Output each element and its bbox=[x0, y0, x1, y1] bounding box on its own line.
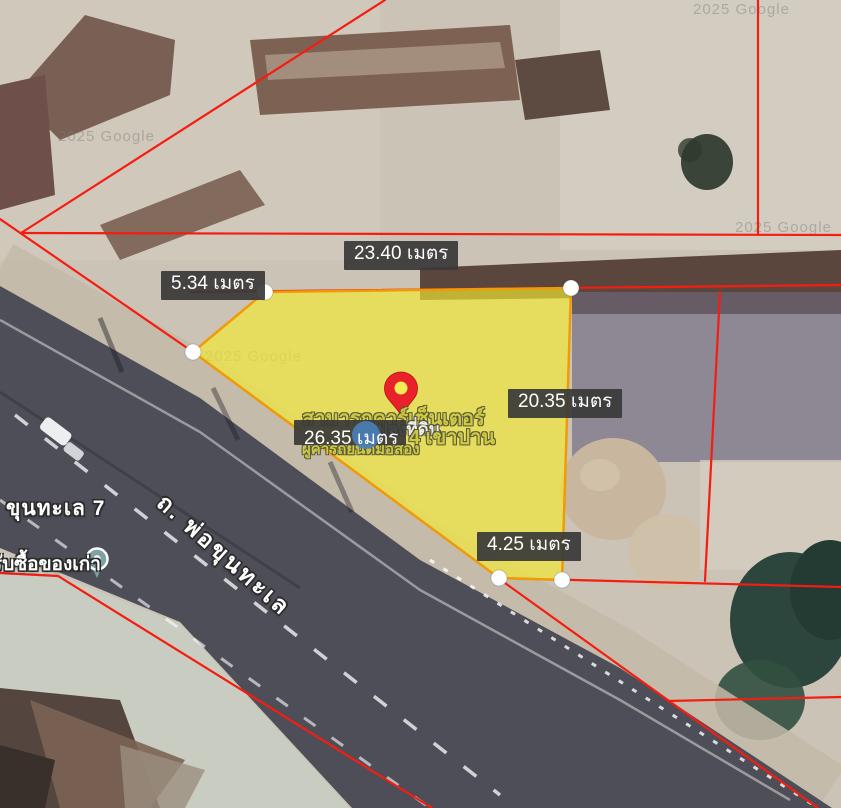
place-label-shop: รับซื้อของเก่า bbox=[0, 549, 101, 579]
parcel-boundary-line bbox=[498, 578, 818, 808]
vertex-handle[interactable] bbox=[185, 344, 201, 360]
measurement-label: 5.34 เมตร bbox=[161, 271, 265, 300]
parcel-boundary-line bbox=[0, 573, 432, 808]
measurement-label: 23.40 เมตร bbox=[344, 241, 458, 270]
street-label-soi: ขุนทะเล 7 bbox=[6, 492, 105, 525]
parcel-boundary-line bbox=[668, 697, 841, 701]
parcel-boundary-line bbox=[21, 233, 841, 235]
measurement-label: 4.25 เมตร bbox=[477, 532, 581, 561]
parcel-overlay bbox=[0, 0, 841, 808]
parcel-boundary-line bbox=[21, 0, 385, 233]
measurement-label-text: 26.35 เมตร bbox=[304, 423, 398, 453]
satellite-map-view[interactable]: 2025 Google 2025 Google 2025 Google 2025… bbox=[0, 0, 841, 808]
parcel-boundary-line bbox=[705, 292, 720, 581]
vertex-handle[interactable] bbox=[563, 280, 579, 296]
measurement-label: 20.35 เมตร bbox=[508, 389, 622, 418]
vertex-handle[interactable] bbox=[554, 572, 570, 588]
vertex-handle[interactable] bbox=[491, 570, 507, 586]
